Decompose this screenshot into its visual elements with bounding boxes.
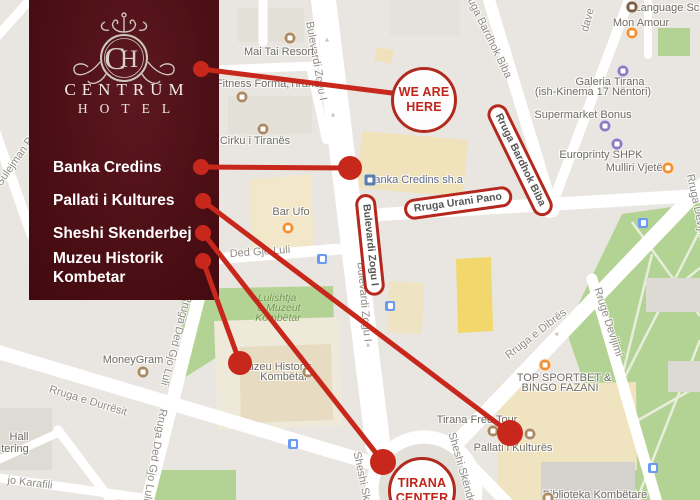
we-are-here-line2: HERE — [406, 100, 442, 115]
hotel-logo: C H — [29, 4, 219, 84]
monogram-icon: C H — [101, 35, 147, 81]
panel-item: Sheshi Skenderbej — [53, 224, 205, 243]
tirana-center-line1: TIRANA — [398, 476, 446, 491]
crown-icon — [102, 13, 147, 32]
tirana-center-line2: CENTER — [396, 491, 449, 500]
hotel-panel: C H CENTRUM HOTEL Banka CredinsPallati i… — [29, 0, 219, 300]
we-are-here-callout: WE ARE HERE — [391, 67, 457, 133]
panel-item: Muzeu Historik Kombetar — [53, 249, 205, 287]
panel-item: Banka Credins — [53, 158, 205, 177]
hotel-word: HOTEL — [29, 101, 219, 117]
panel-item: Pallati i Kultures — [53, 191, 205, 210]
we-are-here-line1: WE ARE — [399, 85, 450, 100]
hotel-name: CENTRUM — [29, 80, 219, 100]
map-canvas[interactable]: Bulevardi Zogu IBulevardi Zogu IRruga Ba… — [0, 0, 700, 500]
svg-text:H: H — [120, 46, 138, 73]
